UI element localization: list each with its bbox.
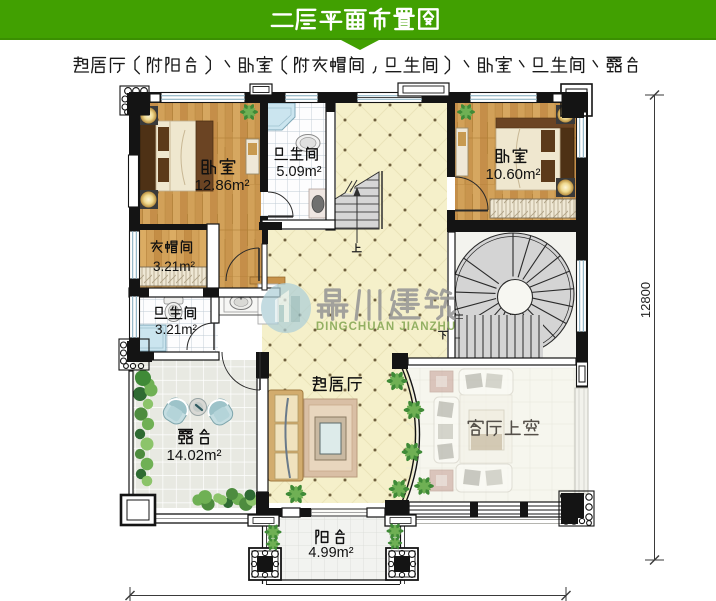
svg-text:12800: 12800	[638, 282, 653, 318]
svg-text:5.09m²: 5.09m²	[276, 164, 321, 180]
svg-text:3.21m²: 3.21m²	[153, 259, 196, 274]
svg-text:12.86m²: 12.86m²	[194, 177, 249, 194]
svg-text:10.60m²: 10.60m²	[485, 166, 540, 183]
svg-text:14.02m²: 14.02m²	[166, 447, 221, 464]
svg-text:4.99m²: 4.99m²	[308, 545, 353, 561]
svg-text:DINGCHUAN JIANZHU: DINGCHUAN JIANZHU	[316, 321, 456, 333]
